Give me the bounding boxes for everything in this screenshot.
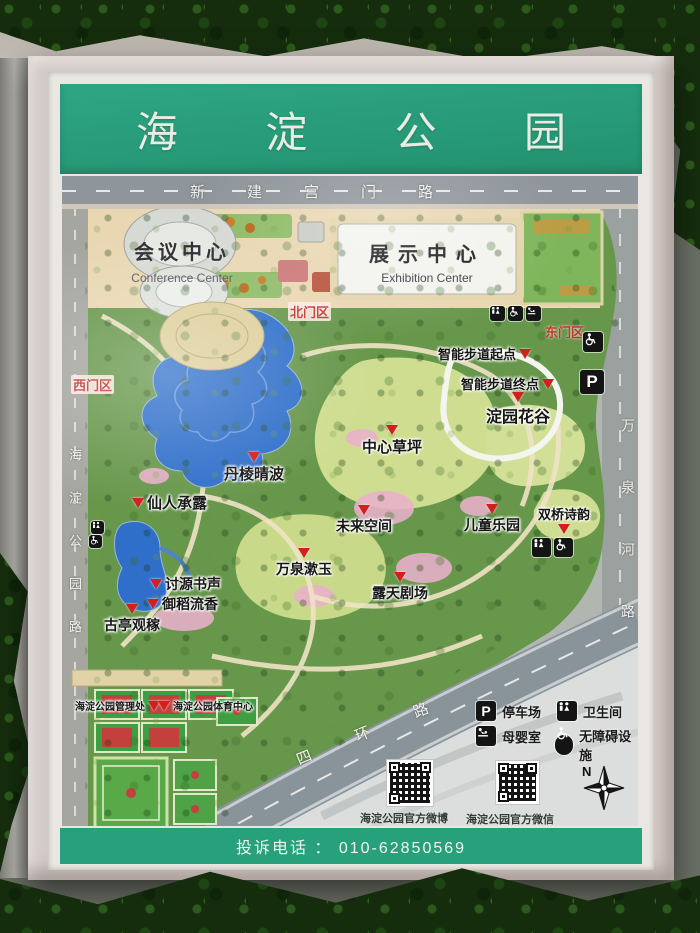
poi-management-office: 海淀公园管理处	[75, 698, 160, 713]
photo-of-park-map-sign: 海 淀 公 园	[0, 0, 700, 933]
poi-smart-trail-start: 智能步道起点	[438, 344, 531, 363]
poi-marker-icon	[150, 579, 162, 589]
parking-icon: P	[580, 370, 604, 394]
poi-sports-center: 海淀公园体育中心	[158, 698, 253, 713]
poi-marker-icon	[358, 505, 370, 515]
poi-marker-icon	[158, 701, 170, 711]
poi-danling-qingbo: 丹棱晴波	[224, 452, 284, 484]
legend-parking: P 停车场	[476, 701, 541, 721]
toilet-icon	[91, 521, 104, 534]
gate-north: 北门区	[288, 302, 331, 321]
poi-marker-icon	[486, 504, 498, 514]
poi-marker-icon	[126, 604, 138, 614]
poi-guting-guanjia: 古亭观稼	[104, 604, 160, 635]
gate-west: 西门区	[71, 375, 114, 394]
road-name-top: 新建宫门路	[190, 181, 475, 202]
legend-toilet: 卫生间	[557, 701, 622, 721]
road-name-left: 海淀公园路	[65, 448, 84, 663]
toilet-icon	[532, 538, 551, 557]
poi-marker-icon	[519, 349, 531, 359]
exhibition-center-label: 展示中心 Exhibition Center	[340, 238, 514, 285]
wheelchair-icon	[583, 332, 603, 352]
wheelchair-icon	[554, 538, 573, 557]
wheelchair-icon	[89, 535, 102, 548]
gate-east: 东门区	[543, 322, 586, 341]
legend-baby-care: 母婴室	[476, 726, 541, 746]
poi-marker-icon	[386, 425, 398, 435]
qr-label-wechat: 海淀公园官方微信	[466, 811, 554, 826]
wheelchair-icon	[555, 735, 573, 755]
poi-taoyuan-shusheng: 讨源书声	[150, 574, 221, 594]
complaint-phone-text: 投诉电话 ： 010-62850569	[236, 834, 466, 858]
wheelchair-icon	[508, 306, 523, 321]
title-char: 园	[524, 99, 566, 160]
complaint-phone-bar: 投诉电话 ： 010-62850569	[60, 828, 642, 864]
poi-marker-icon	[132, 498, 144, 508]
park-map: 新建宫门路 海淀公园路 万泉河路 四环路 会议中心 Conference Cen…	[62, 176, 638, 826]
qr-code-weibo	[387, 760, 433, 806]
poi-marker-icon	[248, 452, 260, 462]
title-char: 公	[395, 99, 437, 160]
poi-children-playground: 儿童乐园	[464, 504, 520, 535]
poi-smart-trail-end: 智能步道终点	[461, 374, 554, 393]
park-title-band: 海 淀 公 园	[60, 84, 642, 174]
parking-icon: P	[476, 701, 496, 721]
compass-rose: N	[582, 764, 591, 779]
poi-open-air-theater: 露天剧场	[372, 572, 428, 603]
qr-label-weibo: 海淀公园官方微博	[360, 810, 448, 826]
poi-marker-icon	[512, 392, 524, 402]
baby-care-icon	[476, 726, 496, 746]
qr-code-wechat	[496, 761, 539, 804]
map-sign-board: 海 淀 公 园	[28, 56, 674, 880]
poi-marker-icon	[394, 572, 406, 582]
poi-xianren-chenglu: 仙人承露	[132, 492, 207, 513]
poi-future-space: 未来空间	[336, 505, 392, 536]
poi-central-lawn: 中心草坪	[362, 425, 422, 457]
poi-marker-icon	[558, 524, 570, 534]
road-name-right: 万泉河路	[618, 418, 638, 666]
toilet-icon	[490, 306, 505, 321]
title-char: 淀	[265, 99, 307, 160]
conference-center-label: 会议中心 Conference Center	[102, 236, 262, 285]
title-char: 海	[136, 99, 178, 160]
compass-star-icon	[582, 764, 626, 810]
legend-accessible: 无障碍设施	[555, 726, 638, 764]
management-buildings	[72, 670, 222, 686]
toilet-icon	[557, 701, 577, 721]
poi-marker-icon	[298, 548, 310, 558]
poi-flower-valley: 淀园花谷	[486, 392, 550, 427]
poi-wanquan-shuyu: 万泉漱玉	[276, 548, 332, 579]
poi-marker-icon	[542, 379, 554, 389]
poi-twin-bridge: 双桥诗韵	[538, 504, 590, 534]
baby-care-icon	[526, 306, 541, 321]
